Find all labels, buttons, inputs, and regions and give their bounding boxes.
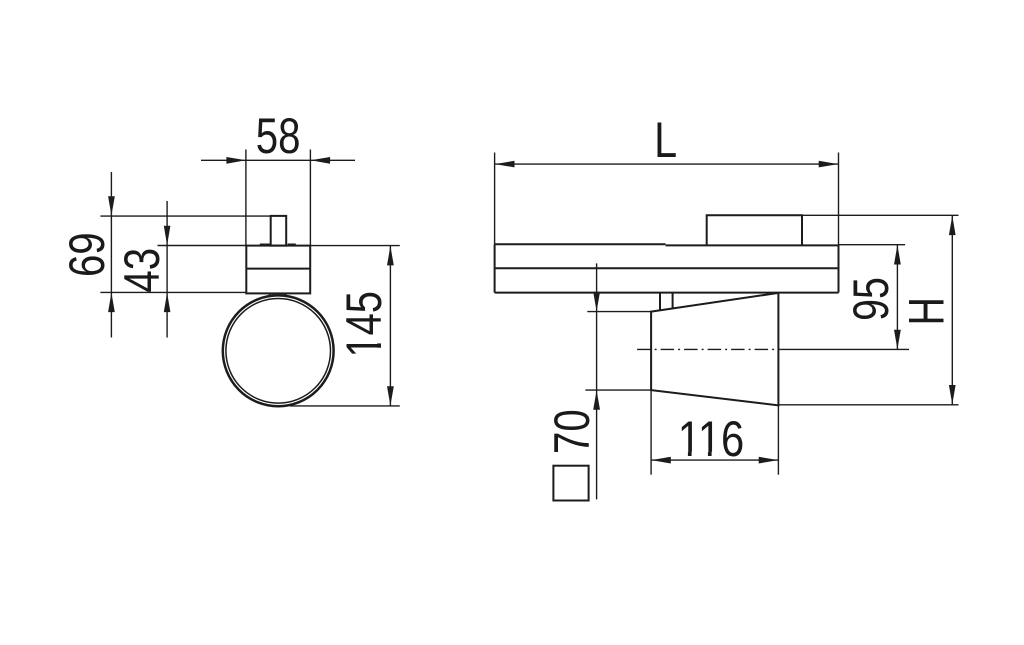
svg-text:70: 70 — [544, 409, 600, 454]
svg-text:116: 116 — [678, 411, 745, 467]
svg-text:58: 58 — [256, 108, 301, 164]
svg-text:H: H — [898, 297, 954, 325]
svg-text:69: 69 — [59, 232, 115, 277]
svg-text:145: 145 — [336, 291, 392, 358]
svg-text:L: L — [654, 112, 677, 168]
svg-text:95: 95 — [843, 277, 899, 321]
svg-text:43: 43 — [114, 248, 170, 293]
